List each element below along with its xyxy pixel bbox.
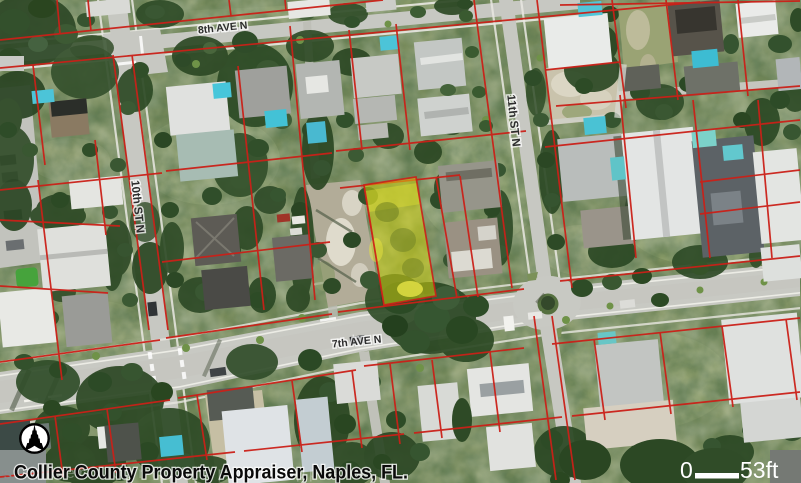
svg-text:53ft: 53ft bbox=[740, 457, 779, 483]
svg-text:0: 0 bbox=[680, 457, 693, 483]
svg-text:Collier County Property Apprai: Collier County Property Appraiser, Naple… bbox=[14, 463, 408, 483]
svg-text:'S: 'S bbox=[1, 468, 12, 482]
